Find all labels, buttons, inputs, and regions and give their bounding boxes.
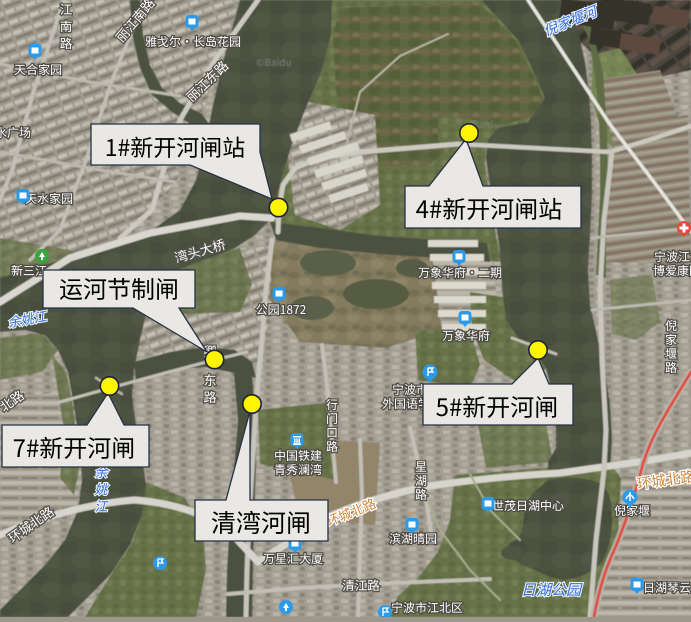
svg-text:新三江: 新三江 bbox=[11, 262, 47, 279]
svg-text:5#新开河闸: 5#新开河闸 bbox=[436, 388, 559, 423]
svg-text:余姚江: 余姚江 bbox=[94, 462, 109, 515]
svg-text:公园1872: 公园1872 bbox=[256, 301, 307, 318]
svg-text:行门口路: 行门口路 bbox=[326, 396, 338, 455]
svg-text:清湾河闸: 清湾河闸 bbox=[211, 504, 311, 540]
svg-text:万象华府·二期: 万象华府·二期 bbox=[418, 264, 502, 281]
svg-text:雅戈尔·长岛花园: 雅戈尔·长岛花园 bbox=[145, 33, 241, 50]
svg-text:水广场: 水广场 bbox=[0, 124, 31, 141]
svg-text:©Baidu: ©Baidu bbox=[256, 54, 292, 69]
svg-text:天水家园: 天水家园 bbox=[25, 190, 73, 207]
svg-text:星湖路: 星湖路 bbox=[415, 458, 427, 503]
svg-text:日湖公园: 日湖公园 bbox=[521, 579, 583, 600]
svg-text:博爱康医: 博爱康医 bbox=[653, 262, 691, 279]
svg-text:7#新开河闸: 7#新开河闸 bbox=[13, 429, 136, 464]
svg-text:日湖琴云: 日湖琴云 bbox=[643, 579, 691, 596]
svg-text:青秀澜湾: 青秀澜湾 bbox=[274, 461, 322, 478]
svg-text:天合家园: 天合家园 bbox=[14, 61, 62, 78]
svg-text:运河节制闸: 运河节制闸 bbox=[59, 270, 179, 305]
svg-text:世茂日湖中心: 世茂日湖中心 bbox=[492, 497, 564, 514]
svg-text:4#新开河闸站: 4#新开河闸站 bbox=[416, 190, 563, 225]
svg-text:万象华府: 万象华府 bbox=[442, 327, 490, 344]
svg-text:宁波市江北区: 宁波市江北区 bbox=[391, 599, 463, 616]
svg-text:清江路: 清江路 bbox=[342, 575, 380, 594]
svg-text:倪家堰路: 倪家堰路 bbox=[665, 317, 677, 376]
svg-text:江南路: 江南路 bbox=[60, 0, 73, 52]
svg-text:万星汇大厦: 万星汇大厦 bbox=[263, 550, 323, 567]
svg-text:1#新开河闸站: 1#新开河闸站 bbox=[105, 129, 246, 163]
